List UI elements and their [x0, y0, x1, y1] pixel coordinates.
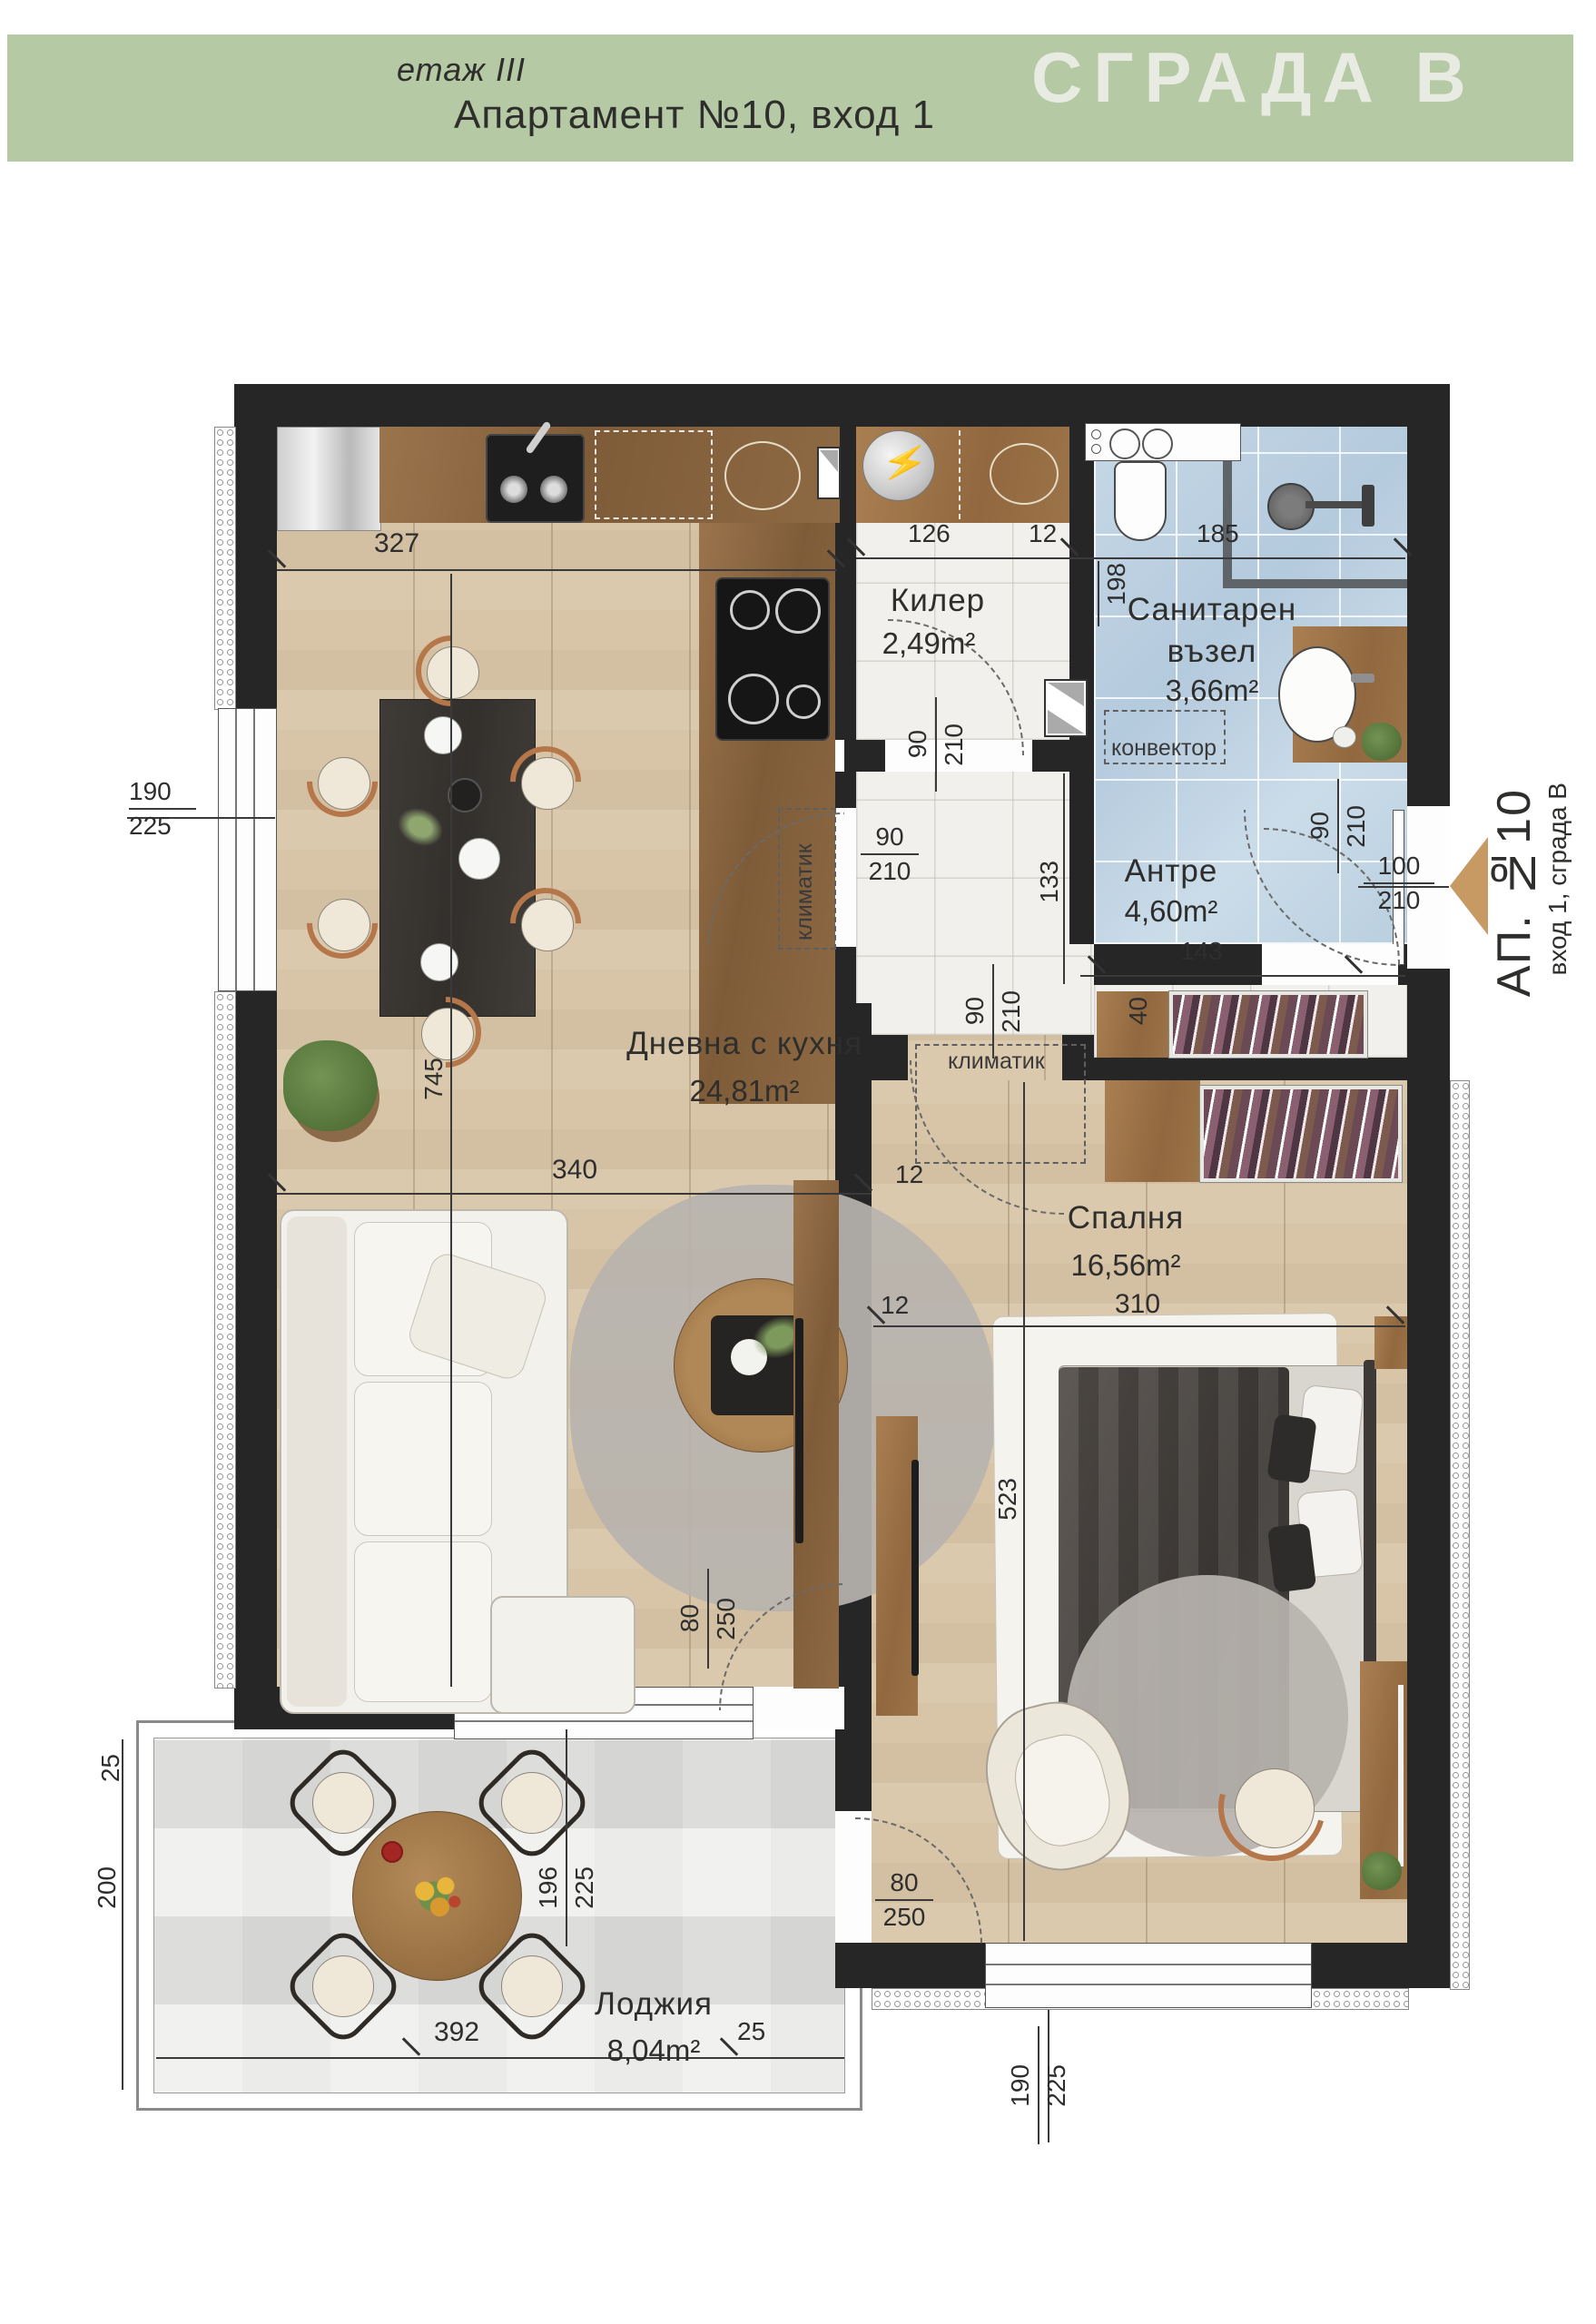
sink-bowl-right [540, 476, 567, 503]
dim-entry-door: 100 210 [1364, 852, 1434, 915]
insulation-left-upper [214, 427, 236, 710]
dim-bath-width: 185 [1197, 519, 1239, 548]
dim-left-window-den: 225 [129, 812, 172, 841]
dim-kiler-wall: 12 [1029, 519, 1057, 548]
bath-area: 3,66m² [1117, 674, 1307, 708]
bath-faucet [1351, 674, 1374, 683]
loggia-chair-2-seat [501, 1772, 563, 1834]
dim-entry-door-den: 210 [1378, 886, 1421, 915]
left-window [218, 708, 277, 991]
wall-top [234, 384, 1450, 427]
dim-bedroom-door-den: 210 [997, 990, 1026, 1033]
dim-bedroom-window-line [1038, 2026, 1039, 2144]
loggia-label: Лоджия [572, 1986, 735, 2023]
dimline-loggia-392 [156, 2057, 844, 2059]
wall-bedroom-bottom-r [1312, 1943, 1407, 1988]
plate-3 [420, 943, 458, 981]
toilet [1114, 461, 1167, 541]
bath-pebble [1333, 726, 1356, 748]
loggia-chair-1-seat [312, 1772, 374, 1834]
shaft-a-tri1 [1048, 683, 1084, 706]
sofa-ottoman [490, 1596, 635, 1714]
dim-living-window-num: 196 [534, 1866, 563, 1909]
wall-living-antre-b [835, 947, 856, 1003]
dim-bedroom-loggia-den: 250 [883, 1903, 926, 1932]
dim-entry-door-line [1364, 882, 1434, 884]
shower-partition-h [1223, 579, 1407, 588]
bath-plant [1362, 723, 1402, 761]
dimline-340 [277, 1193, 872, 1195]
dim-bedroom-loggia-line [875, 1899, 933, 1901]
plant-living [283, 1040, 378, 1131]
sofa-back [287, 1216, 347, 1707]
antre-wardrobe [1169, 991, 1367, 1058]
dim-kiler-width: 126 [908, 519, 951, 548]
hob [715, 577, 830, 741]
hob-burner-3 [728, 674, 779, 724]
chair-left-top [318, 757, 370, 810]
dim-bedroom-loggia-num: 80 [890, 1868, 918, 1897]
shaft-symbol-b [817, 447, 841, 499]
entrance-tag-main: АП. №10 [1487, 788, 1542, 997]
dimline-310 [873, 1325, 1405, 1327]
dim-kitchen-width: 327 [374, 528, 419, 559]
antre-label: Антре [1080, 853, 1262, 890]
dim-bedroom-loggia-door: 80 250 [875, 1868, 933, 1932]
tv-living [795, 1318, 803, 1543]
bed-pillow-dark-2 [1267, 1522, 1316, 1592]
dim-antre-opening: 90 210 [861, 822, 919, 886]
wm-dot1 [1091, 429, 1101, 439]
entry-arrow-icon [1450, 837, 1488, 935]
shaft-a-tri2 [1048, 710, 1084, 734]
dim-kiler-door: 90 210 [903, 697, 969, 792]
shower-mixer [1362, 485, 1374, 527]
chair-bottom [421, 1008, 474, 1060]
dim-living-window-den: 225 [570, 1866, 599, 1909]
wm-knob2 [1142, 428, 1173, 459]
chair-right-top [521, 757, 574, 810]
bath-label-2: възел [1117, 634, 1307, 670]
entrance-tag-sub: вход 1, сграда В [1543, 783, 1572, 976]
washing-machine [1085, 423, 1241, 461]
upper-cabinet-dashed [595, 430, 713, 519]
antre-area: 4,60m² [1080, 894, 1262, 929]
fridge [277, 427, 381, 531]
dim-bedroom-door: 90 210 [961, 964, 1026, 1059]
chair-left-bot [318, 899, 370, 951]
dim-antre-opening-line [861, 853, 919, 855]
dim-living-window-line [566, 1828, 567, 1946]
wall-bedroom-bottom-l [872, 1943, 985, 1988]
bedroom-wardrobe [1200, 1086, 1402, 1182]
shaft-b-tri [820, 450, 838, 472]
desk-plant [1362, 1852, 1402, 1890]
apartment-title: Апартамент №10, вход 1 [454, 93, 935, 138]
dim-antre-opening-num: 90 [875, 822, 903, 852]
dim-left-window-line [129, 808, 196, 810]
shower-arm [1305, 501, 1369, 508]
wall-left-lower [234, 991, 277, 1729]
dim-antre-opening-den: 210 [869, 857, 911, 886]
desk-slot [1398, 1685, 1404, 1866]
dining-table [379, 699, 536, 1017]
floor-label: етаж III [397, 51, 526, 89]
kitchen-sink [486, 434, 585, 523]
living-window-line2 [455, 1720, 753, 1722]
dim-living-loggia-den: 250 [712, 1598, 741, 1640]
dim-antre-depth: 133 [1035, 861, 1064, 903]
table-sprig [391, 801, 449, 853]
bedroom-area: 16,56m² [1035, 1248, 1217, 1283]
dim-loggia-corner: 25 [96, 1754, 125, 1782]
dim-kiler-door-num: 90 [903, 730, 932, 758]
kiler-label: Килер [856, 583, 1020, 619]
wm-dot2 [1091, 444, 1101, 454]
kiler-area: 2,49m² [847, 626, 1010, 661]
dimline-living-vert [450, 574, 452, 1687]
dimline-kitchen [277, 569, 837, 571]
left-window-line [235, 709, 237, 990]
living-area: 24,81m² [563, 1074, 926, 1108]
dim-bath-depth: 198 [1102, 563, 1131, 606]
dimline-loggia-left [122, 1739, 123, 2090]
bedroom-window [985, 1943, 1312, 2008]
dim-bath-door-den: 210 [1342, 805, 1371, 848]
dim-wardrobe-depth: 40 [1124, 997, 1153, 1025]
left-window-line2 [253, 709, 255, 990]
bedroom-label: Спалня [1035, 1200, 1217, 1236]
dim-bedroom-wall: 12 [881, 1291, 909, 1320]
dim-left-window: 190 225 [129, 777, 196, 841]
wall-left-upper [234, 427, 277, 708]
chair-top [427, 646, 479, 699]
dim-bedroom-length: 523 [993, 1478, 1022, 1521]
wall-right-lower [1407, 969, 1450, 1988]
hob-burner-4 [786, 684, 821, 719]
hob-burner-1 [730, 590, 770, 630]
loggia-chair-3-seat [312, 1955, 374, 2017]
wall-bath-bottom-l [1094, 944, 1262, 985]
dim-loggia-width: 392 [434, 2017, 479, 2048]
kiler-decor-swirl [990, 443, 1059, 505]
dim-bedroom-window-num: 190 [1006, 2064, 1035, 2107]
bath-label-1: Санитарен [1117, 592, 1307, 628]
building-label: СГРАДА В [1031, 36, 1477, 119]
dimline-living-window [566, 1729, 567, 1829]
dim-bedroom-width: 310 [1115, 1289, 1160, 1320]
loggia-chair-4-seat [501, 1955, 563, 2017]
bedroom-side-chair [1235, 1768, 1315, 1848]
chair-right-bot [521, 899, 574, 951]
dimline-523 [1023, 1082, 1025, 1941]
dim-loggia-right: 25 [737, 2017, 765, 2046]
boiler-bolt-icon: ⚡ [879, 437, 931, 487]
dim-antre-width: 143 [1180, 937, 1223, 966]
dim-bath-door-num: 90 [1305, 812, 1335, 840]
kitchen-decor-swirl [724, 441, 801, 510]
dim-bedroom-door-num: 90 [961, 997, 990, 1025]
dimline-143 [1080, 975, 1405, 977]
dim-kiler-door-den: 210 [940, 724, 969, 766]
tv-bedroom [911, 1460, 919, 1676]
plate-1 [424, 716, 462, 754]
wall-living-antre-a [835, 772, 856, 808]
insulation-right [1450, 1080, 1470, 1990]
wm-knob1 [1109, 428, 1140, 459]
loggia-cup [381, 1841, 403, 1863]
klimatik-label-living: климатик [792, 819, 818, 940]
sofa-cushion-3 [354, 1541, 492, 1702]
dim-bedroom-door-line [992, 964, 994, 1059]
insulation-left-lower [214, 991, 236, 1689]
dim-living-width: 340 [552, 1155, 597, 1186]
dimline-kiler-bath [856, 557, 1405, 559]
wall-right-upper [1407, 384, 1450, 806]
dim-living-loggia-door: 80 250 [675, 1569, 741, 1669]
dim-entry-door-num: 100 [1378, 852, 1421, 881]
dim-bath-door-line [1337, 779, 1339, 873]
wall-bedroom-loggia-b [835, 1943, 872, 1988]
wall-kiler-bottom-l [844, 740, 885, 772]
dim-kiler-door-line [935, 697, 937, 792]
living-label: Дневна с кухня [563, 1026, 926, 1062]
sink-bowl-left [500, 476, 527, 503]
plate-2 [458, 838, 500, 880]
loggia-flowers [407, 1870, 467, 1923]
dim-living-length: 745 [419, 1058, 448, 1100]
dim-loggia-depth: 200 [93, 1866, 122, 1909]
dim-bedroom-window-den: 225 [1042, 2064, 1071, 2107]
shaft-symbol-a [1044, 679, 1088, 737]
bedroom-window-line [986, 1964, 1311, 1965]
bedroom-wardrobe-cabinet [1105, 1080, 1200, 1182]
loggia-area: 8,04m² [572, 2033, 735, 2068]
dim-living-window: 196 225 [534, 1828, 599, 1946]
dim-left-window-num: 190 [129, 777, 172, 806]
konvektor-label: конвектор [1111, 735, 1217, 762]
dim-living-loggia-line [707, 1569, 709, 1669]
hob-burner-2 [775, 588, 821, 634]
dim-bath-door: 90 210 [1305, 779, 1371, 873]
dim-bedroom-window: 190 225 [1006, 2026, 1071, 2144]
dim-living-loggia-num: 80 [675, 1604, 704, 1632]
dimline-198 [1098, 561, 1099, 626]
bedroom-window-line2 [986, 1984, 1311, 1985]
bowl-dark [448, 778, 482, 812]
wall-bedroom-top-r [1094, 1058, 1407, 1080]
sofa-cushion-2 [354, 1382, 492, 1536]
dim-living-wall: 12 [895, 1160, 923, 1189]
kiler-shelf-divider [959, 430, 961, 519]
